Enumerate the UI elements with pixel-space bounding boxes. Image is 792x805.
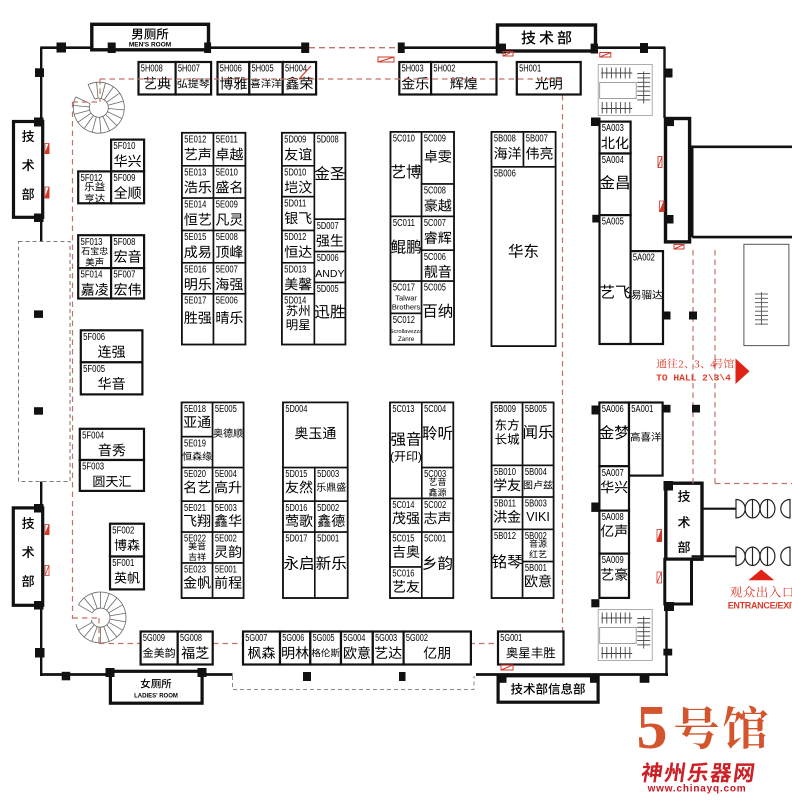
svg-text:5F008: 5F008 — [113, 237, 135, 248]
svg-text:5A006: 5A006 — [602, 404, 624, 415]
svg-text:www.chinayq.com: www.chinayq.com — [647, 784, 747, 795]
svg-text:5C008: 5C008 — [424, 186, 446, 197]
svg-text:5H002: 5H002 — [433, 64, 455, 75]
svg-text:5F005: 5F005 — [83, 364, 105, 375]
svg-text:5G009: 5G009 — [143, 633, 165, 644]
svg-text:5F014: 5F014 — [81, 270, 103, 281]
svg-text:5G002: 5G002 — [406, 633, 428, 644]
svg-text:5B004: 5B004 — [525, 467, 547, 478]
svg-text:VIKI: VIKI — [526, 510, 550, 524]
svg-text:5E017: 5E017 — [184, 295, 206, 306]
svg-text:5E011: 5E011 — [216, 135, 238, 146]
svg-text:5D011: 5D011 — [284, 198, 306, 209]
svg-text:5F002: 5F002 — [112, 525, 134, 536]
svg-text:5C016: 5C016 — [392, 569, 414, 580]
svg-text:5A001: 5A001 — [631, 404, 653, 415]
svg-text:Zanre: Zanre — [398, 336, 415, 343]
svg-text:5D001: 5D001 — [317, 534, 339, 545]
svg-text:5A005: 5A005 — [602, 217, 624, 228]
svg-text:5G001: 5G001 — [500, 633, 522, 644]
svg-text:5E015: 5E015 — [184, 232, 206, 243]
svg-text:5A004: 5A004 — [602, 155, 624, 166]
svg-text:5B003: 5B003 — [525, 499, 547, 510]
svg-text:5C012: 5C012 — [393, 315, 415, 326]
svg-text:5H006: 5H006 — [220, 64, 242, 75]
svg-text:Brothers: Brothers — [392, 303, 421, 312]
svg-text:5E005: 5E005 — [215, 404, 237, 415]
svg-text:5C011: 5C011 — [393, 218, 415, 229]
svg-text:5C009: 5C009 — [424, 134, 446, 145]
svg-text:5: 5 — [637, 694, 668, 762]
svg-text:5E013: 5E013 — [184, 167, 206, 178]
svg-text:5A009: 5A009 — [602, 555, 624, 566]
svg-text:5E020: 5E020 — [184, 469, 206, 480]
svg-text:5G005: 5G005 — [313, 633, 335, 644]
svg-text:5B008: 5B008 — [494, 134, 516, 145]
svg-text:5C007: 5C007 — [424, 218, 446, 229]
svg-text:5B012: 5B012 — [494, 531, 516, 542]
svg-text:5D015: 5D015 — [285, 469, 307, 480]
svg-text:3: 3 — [694, 359, 699, 371]
svg-text:5C001: 5C001 — [424, 534, 446, 545]
svg-text:5G006: 5G006 — [282, 633, 304, 644]
svg-text:5E001: 5E001 — [215, 565, 237, 576]
svg-text:5E023: 5E023 — [184, 565, 206, 576]
svg-text:5B005: 5B005 — [525, 404, 547, 415]
svg-text:5E019: 5E019 — [184, 438, 206, 449]
svg-text:5D013: 5D013 — [284, 264, 306, 275]
svg-text:5B007: 5B007 — [526, 134, 548, 145]
svg-text:5B001: 5B001 — [525, 563, 547, 574]
svg-text:5D007: 5D007 — [317, 221, 339, 232]
svg-text:5D016: 5D016 — [285, 503, 307, 514]
svg-text:5A008: 5A008 — [602, 512, 624, 523]
svg-text:5F004: 5F004 — [82, 430, 104, 441]
svg-text:5H003: 5H003 — [402, 64, 424, 75]
svg-text:5F009: 5F009 — [113, 173, 135, 184]
svg-text:5G008: 5G008 — [180, 633, 202, 644]
svg-text:5B009: 5B009 — [494, 404, 516, 415]
svg-text:5D017: 5D017 — [285, 534, 307, 545]
svg-text:MEN'S ROOM: MEN'S ROOM — [129, 42, 171, 49]
svg-text:LADIES' ROOM: LADIES' ROOM — [134, 694, 178, 700]
svg-text:5E004: 5E004 — [215, 469, 237, 480]
svg-text:5H005: 5H005 — [252, 64, 274, 75]
svg-text:5C013: 5C013 — [392, 404, 414, 415]
svg-text:5D010: 5D010 — [284, 167, 306, 178]
svg-text:5E016: 5E016 — [184, 264, 206, 275]
svg-text:5C006: 5C006 — [424, 252, 446, 263]
svg-text:5F001: 5F001 — [112, 558, 134, 569]
svg-text:5D002: 5D002 — [317, 503, 339, 514]
svg-text:5A002: 5A002 — [633, 253, 655, 264]
svg-text:ENTRANCE/EXIT: ENTRANCE/EXIT — [728, 601, 792, 611]
svg-text:5C005: 5C005 — [424, 283, 446, 294]
svg-text:5H007: 5H007 — [178, 64, 200, 75]
svg-text:5F007: 5F007 — [113, 270, 135, 281]
svg-text:5B006: 5B006 — [494, 169, 516, 180]
svg-text:5C002: 5C002 — [424, 500, 446, 511]
svg-text:5E021: 5E021 — [184, 503, 206, 514]
svg-text:5F003: 5F003 — [82, 462, 104, 473]
svg-text:Talwar: Talwar — [395, 294, 417, 303]
svg-text:5E007: 5E007 — [216, 264, 238, 275]
svg-text:(: ( — [390, 450, 394, 464]
svg-text:5C014: 5C014 — [392, 500, 414, 511]
svg-text:5D012: 5D012 — [284, 232, 306, 243]
svg-text:5E012: 5E012 — [184, 135, 206, 146]
svg-text:5G004: 5G004 — [343, 633, 365, 644]
svg-text:5A003: 5A003 — [602, 123, 624, 134]
svg-text:Scrollavezza: Scrollavezza — [390, 329, 424, 335]
svg-text:5H008: 5H008 — [141, 64, 163, 75]
svg-text:5A007: 5A007 — [602, 468, 624, 479]
svg-text:5E008: 5E008 — [216, 232, 238, 243]
svg-text:5F013: 5F013 — [81, 237, 103, 248]
svg-text:5F010: 5F010 — [113, 141, 135, 152]
svg-text:5D005: 5D005 — [317, 284, 339, 295]
svg-text:5G003: 5G003 — [375, 633, 397, 644]
svg-text:ANDY: ANDY — [315, 268, 344, 280]
svg-text:5E010: 5E010 — [216, 167, 238, 178]
svg-text:5D004: 5D004 — [285, 404, 307, 415]
svg-text:5E006: 5E006 — [216, 295, 238, 306]
svg-text:5H001: 5H001 — [519, 64, 541, 75]
svg-text:5D003: 5D003 — [317, 469, 339, 480]
svg-text:5E003: 5E003 — [215, 503, 237, 514]
svg-text:5C004: 5C004 — [424, 404, 446, 415]
svg-text:5D014: 5D014 — [284, 295, 306, 306]
svg-text:5C010: 5C010 — [393, 134, 415, 145]
svg-text:5E014: 5E014 — [184, 200, 206, 211]
svg-text:5D008: 5D008 — [317, 135, 339, 146]
svg-text:5B011: 5B011 — [494, 499, 516, 510]
svg-text:5G007: 5G007 — [245, 633, 267, 644]
svg-text:5F006: 5F006 — [83, 332, 105, 343]
svg-text:5E009: 5E009 — [216, 200, 238, 211]
svg-text:TO HALL 2\3\4: TO HALL 2\3\4 — [656, 373, 731, 384]
svg-text:2: 2 — [678, 359, 683, 371]
svg-text:5C017: 5C017 — [393, 283, 415, 294]
svg-text:5E002: 5E002 — [215, 534, 237, 545]
svg-text:5D006: 5D006 — [317, 253, 339, 264]
svg-text:5C015: 5C015 — [392, 534, 414, 545]
svg-text:5E018: 5E018 — [184, 404, 206, 415]
svg-text:5D009: 5D009 — [284, 135, 306, 146]
svg-text:5B010: 5B010 — [494, 467, 516, 478]
